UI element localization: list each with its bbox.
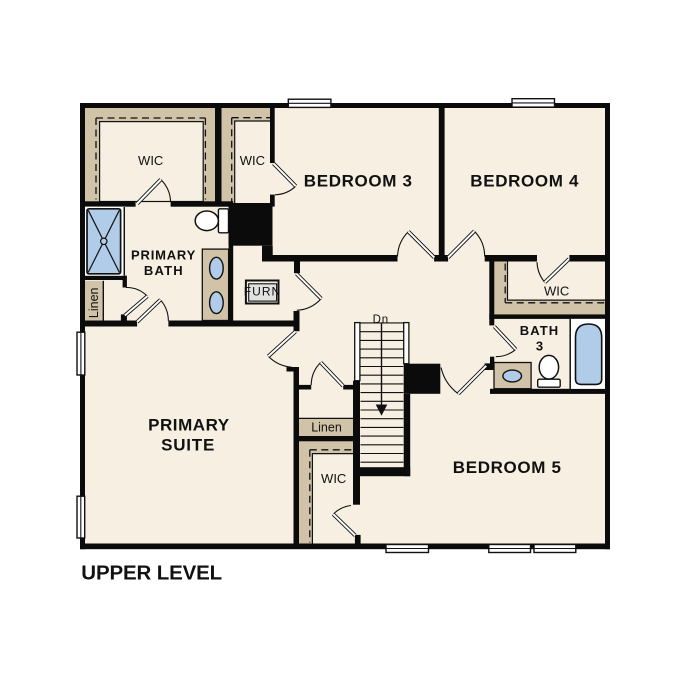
svg-text:Linen: Linen [87,287,101,318]
svg-text:BEDROOM 4: BEDROOM 4 [470,172,579,191]
svg-text:UPPER LEVEL: UPPER LEVEL [81,562,222,585]
svg-text:3: 3 [536,339,543,354]
svg-text:PRIMARY: PRIMARY [148,415,230,434]
svg-text:WIC: WIC [240,153,265,168]
svg-text:PRIMARY: PRIMARY [131,248,196,263]
svg-text:FURN: FURN [244,285,282,299]
svg-text:BATH: BATH [520,323,560,338]
svg-text:WIC: WIC [544,284,569,299]
svg-text:Dn: Dn [373,314,389,326]
svg-text:Linen: Linen [311,421,342,435]
svg-text:WIC: WIC [321,471,346,486]
svg-text:SUITE: SUITE [161,436,215,455]
svg-text:BEDROOM 3: BEDROOM 3 [304,172,413,191]
svg-text:BATH: BATH [144,263,184,278]
svg-text:WIC: WIC [138,153,163,168]
svg-text:BEDROOM 5: BEDROOM 5 [453,458,562,477]
